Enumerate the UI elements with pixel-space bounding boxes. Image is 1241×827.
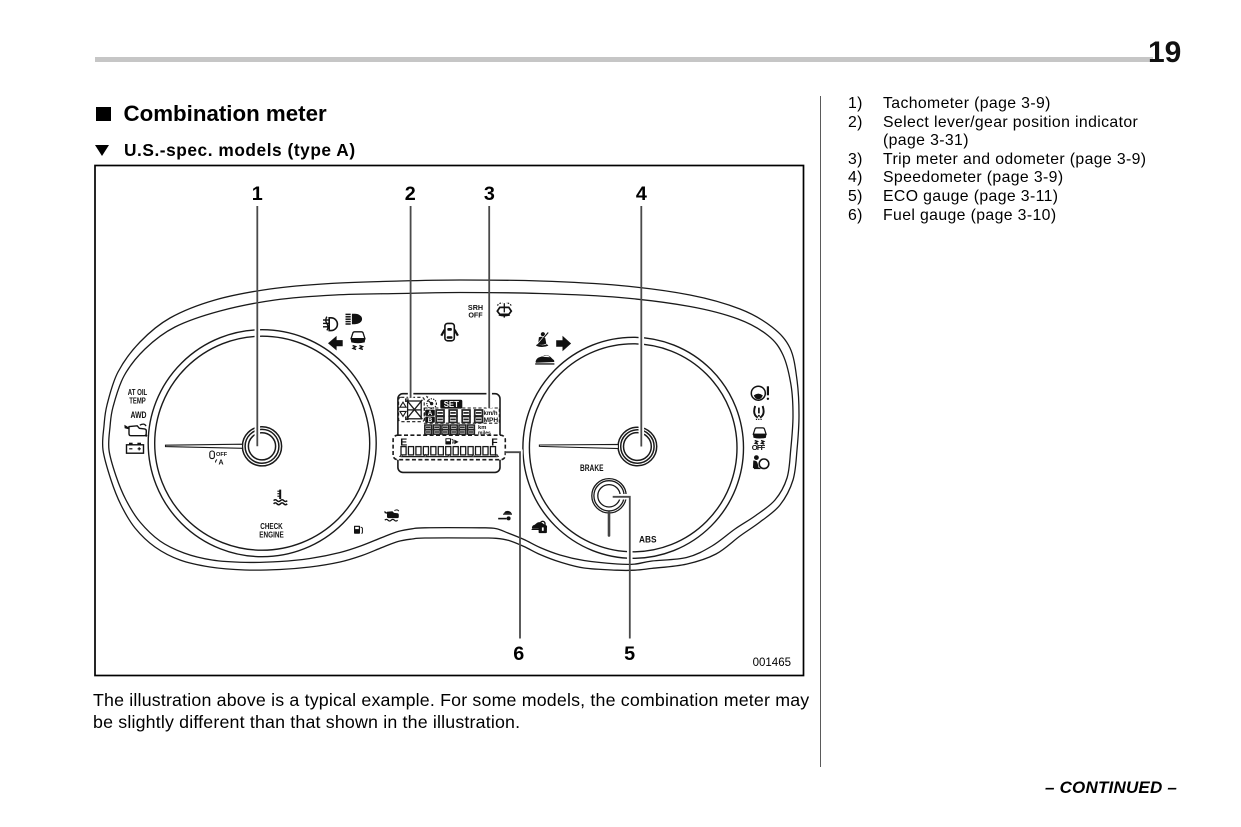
svg-text:km/h: km/h [484,411,498,417]
svg-text:OFF: OFF [752,443,766,452]
svg-text:OFF: OFF [216,452,228,458]
svg-text:3: 3 [484,183,495,205]
svg-text:A: A [219,460,224,467]
svg-text:ABS: ABS [639,535,657,545]
svg-text:TEMP: TEMP [129,397,146,406]
svg-text:BRAKE: BRAKE [580,463,604,473]
svg-text:2: 2 [405,183,416,205]
svg-text:1: 1 [252,183,263,205]
svg-text:MPH: MPH [484,417,499,424]
svg-text:OFF: OFF [468,311,483,320]
svg-text:6: 6 [513,643,524,665]
svg-text:ENGINE: ENGINE [259,531,284,540]
svg-text:B: B [428,417,433,424]
svg-text:001465: 001465 [753,657,791,669]
svg-text:5: 5 [624,643,635,665]
svg-text:AWD: AWD [131,410,147,421]
svg-text:4: 4 [636,183,647,205]
